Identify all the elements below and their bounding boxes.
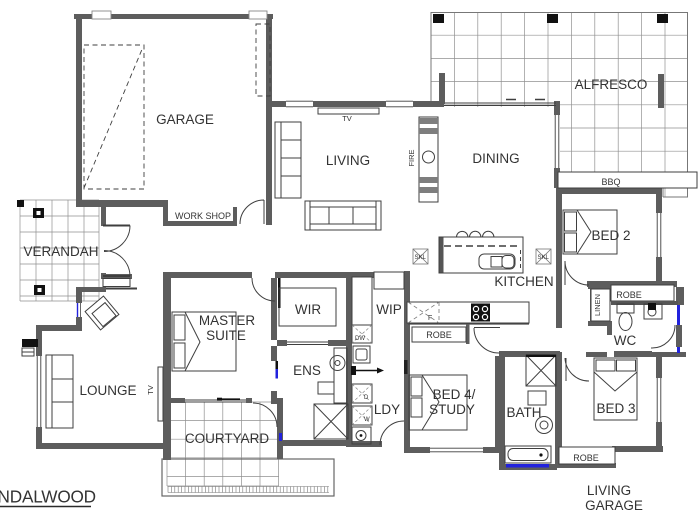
svg-text:ROBE: ROBE — [573, 453, 599, 463]
svg-text:LIVING: LIVING — [587, 483, 631, 498]
svg-text:SKL: SKL — [415, 255, 427, 261]
svg-text:FIRE: FIRE — [407, 149, 416, 166]
svg-text:WORK SHOP: WORK SHOP — [175, 211, 231, 221]
svg-text:DW: DW — [355, 336, 365, 342]
svg-text:COURTYARD: COURTYARD — [185, 431, 270, 446]
svg-text:LDY: LDY — [374, 402, 400, 417]
svg-text:DINING: DINING — [472, 151, 519, 166]
svg-text:ROBE: ROBE — [426, 330, 452, 340]
svg-text:SKL: SKL — [538, 255, 550, 261]
svg-text:ALFRESCO: ALFRESCO — [575, 77, 648, 92]
svg-text:LOUNGE: LOUNGE — [79, 383, 136, 398]
svg-text:BED 3: BED 3 — [596, 401, 635, 416]
svg-text:ROBE: ROBE — [616, 290, 642, 300]
svg-text:VERANDAH: VERANDAH — [23, 244, 98, 259]
svg-text:F: F — [428, 315, 432, 322]
svg-text:D: D — [364, 395, 369, 401]
svg-text:WIR: WIR — [295, 302, 321, 317]
svg-text:BED 4/: BED 4/ — [433, 387, 476, 402]
svg-text:BBQ: BBQ — [601, 177, 620, 187]
svg-text:TV: TV — [146, 385, 155, 395]
svg-text:BATH: BATH — [506, 405, 541, 420]
svg-text:BED 2: BED 2 — [591, 228, 630, 243]
svg-text:LIVING: LIVING — [326, 153, 370, 168]
svg-text:KITCHEN: KITCHEN — [494, 274, 553, 289]
svg-text:WIP: WIP — [376, 302, 402, 317]
svg-text:LINEN: LINEN — [593, 294, 602, 316]
svg-text:SANDALWOOD: SANDALWOOD — [0, 487, 96, 507]
svg-text:TV: TV — [342, 114, 352, 123]
svg-text:GARAGE: GARAGE — [156, 112, 214, 127]
svg-text:GARAGE: GARAGE — [585, 498, 643, 513]
svg-text:W: W — [364, 417, 370, 423]
svg-text:MASTER: MASTER — [199, 313, 256, 328]
svg-text:WC: WC — [614, 333, 637, 348]
svg-text:SUITE: SUITE — [206, 328, 246, 343]
svg-text:ENS: ENS — [293, 363, 321, 378]
svg-text:STUDY: STUDY — [429, 402, 475, 417]
